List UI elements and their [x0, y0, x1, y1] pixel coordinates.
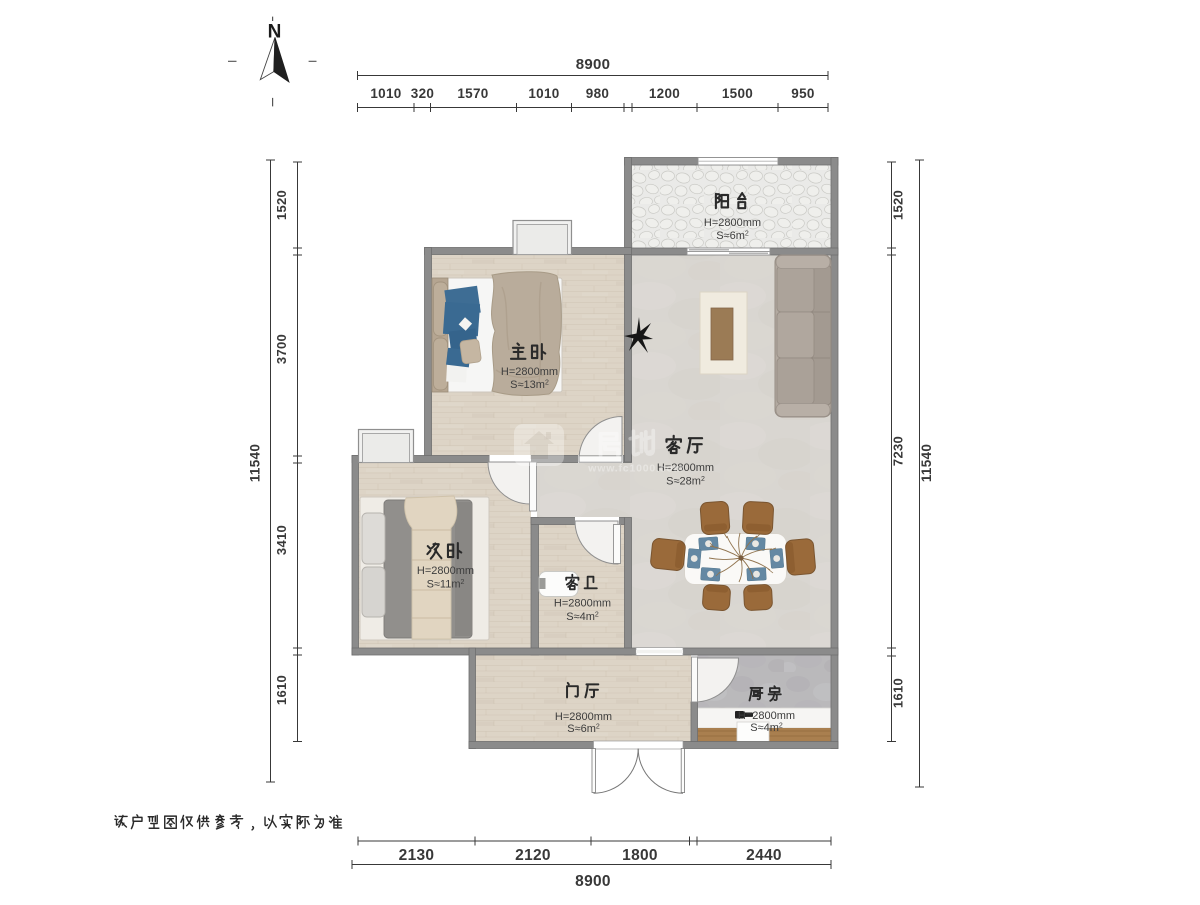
svg-text:1520: 1520	[274, 190, 289, 220]
svg-text:1010: 1010	[370, 86, 401, 101]
svg-text:S≈6m2: S≈6m2	[716, 230, 749, 242]
svg-text:S≈13m2: S≈13m2	[510, 379, 549, 391]
svg-text:950: 950	[791, 86, 814, 101]
svg-text:1610: 1610	[891, 678, 906, 708]
svg-text:H=2800mm: H=2800mm	[555, 711, 612, 723]
svg-text:H=2800mm: H=2800mm	[501, 366, 558, 378]
svg-text:1570: 1570	[457, 86, 488, 101]
svg-text:S≈4m2: S≈4m2	[566, 611, 599, 623]
svg-text:7230: 7230	[891, 436, 906, 466]
svg-text:1520: 1520	[891, 190, 906, 220]
svg-text:320: 320	[411, 86, 434, 101]
svg-text:2120: 2120	[515, 847, 551, 864]
svg-text:S≈11m2: S≈11m2	[427, 579, 465, 591]
svg-text:980: 980	[586, 86, 609, 101]
svg-text:1200: 1200	[649, 86, 680, 101]
svg-text:1610: 1610	[274, 675, 289, 705]
svg-text:1500: 1500	[722, 86, 753, 101]
svg-text:H=2800mm: H=2800mm	[554, 598, 611, 610]
svg-text:2440: 2440	[746, 847, 782, 864]
svg-text:8900: 8900	[575, 873, 611, 890]
svg-text:S≈6m2: S≈6m2	[567, 723, 600, 735]
svg-text:H=2800mm: H=2800mm	[738, 710, 795, 722]
svg-text:3700: 3700	[274, 334, 289, 364]
svg-text:H=2800mm: H=2800mm	[704, 217, 761, 229]
svg-text:S≈4m2: S≈4m2	[750, 722, 783, 734]
svg-text:www.fc1000.com: www.fc1000.com	[587, 463, 683, 475]
svg-text:1800: 1800	[622, 847, 658, 864]
svg-text:8900: 8900	[576, 56, 611, 73]
svg-text:11540: 11540	[248, 444, 263, 482]
svg-text:H=2800mm: H=2800mm	[417, 565, 474, 577]
svg-text:2130: 2130	[399, 847, 435, 864]
svg-text:11540: 11540	[919, 444, 934, 482]
svg-text:S≈28m2: S≈28m2	[666, 476, 705, 488]
svg-text:1010: 1010	[528, 86, 559, 101]
svg-text:3410: 3410	[274, 525, 289, 555]
